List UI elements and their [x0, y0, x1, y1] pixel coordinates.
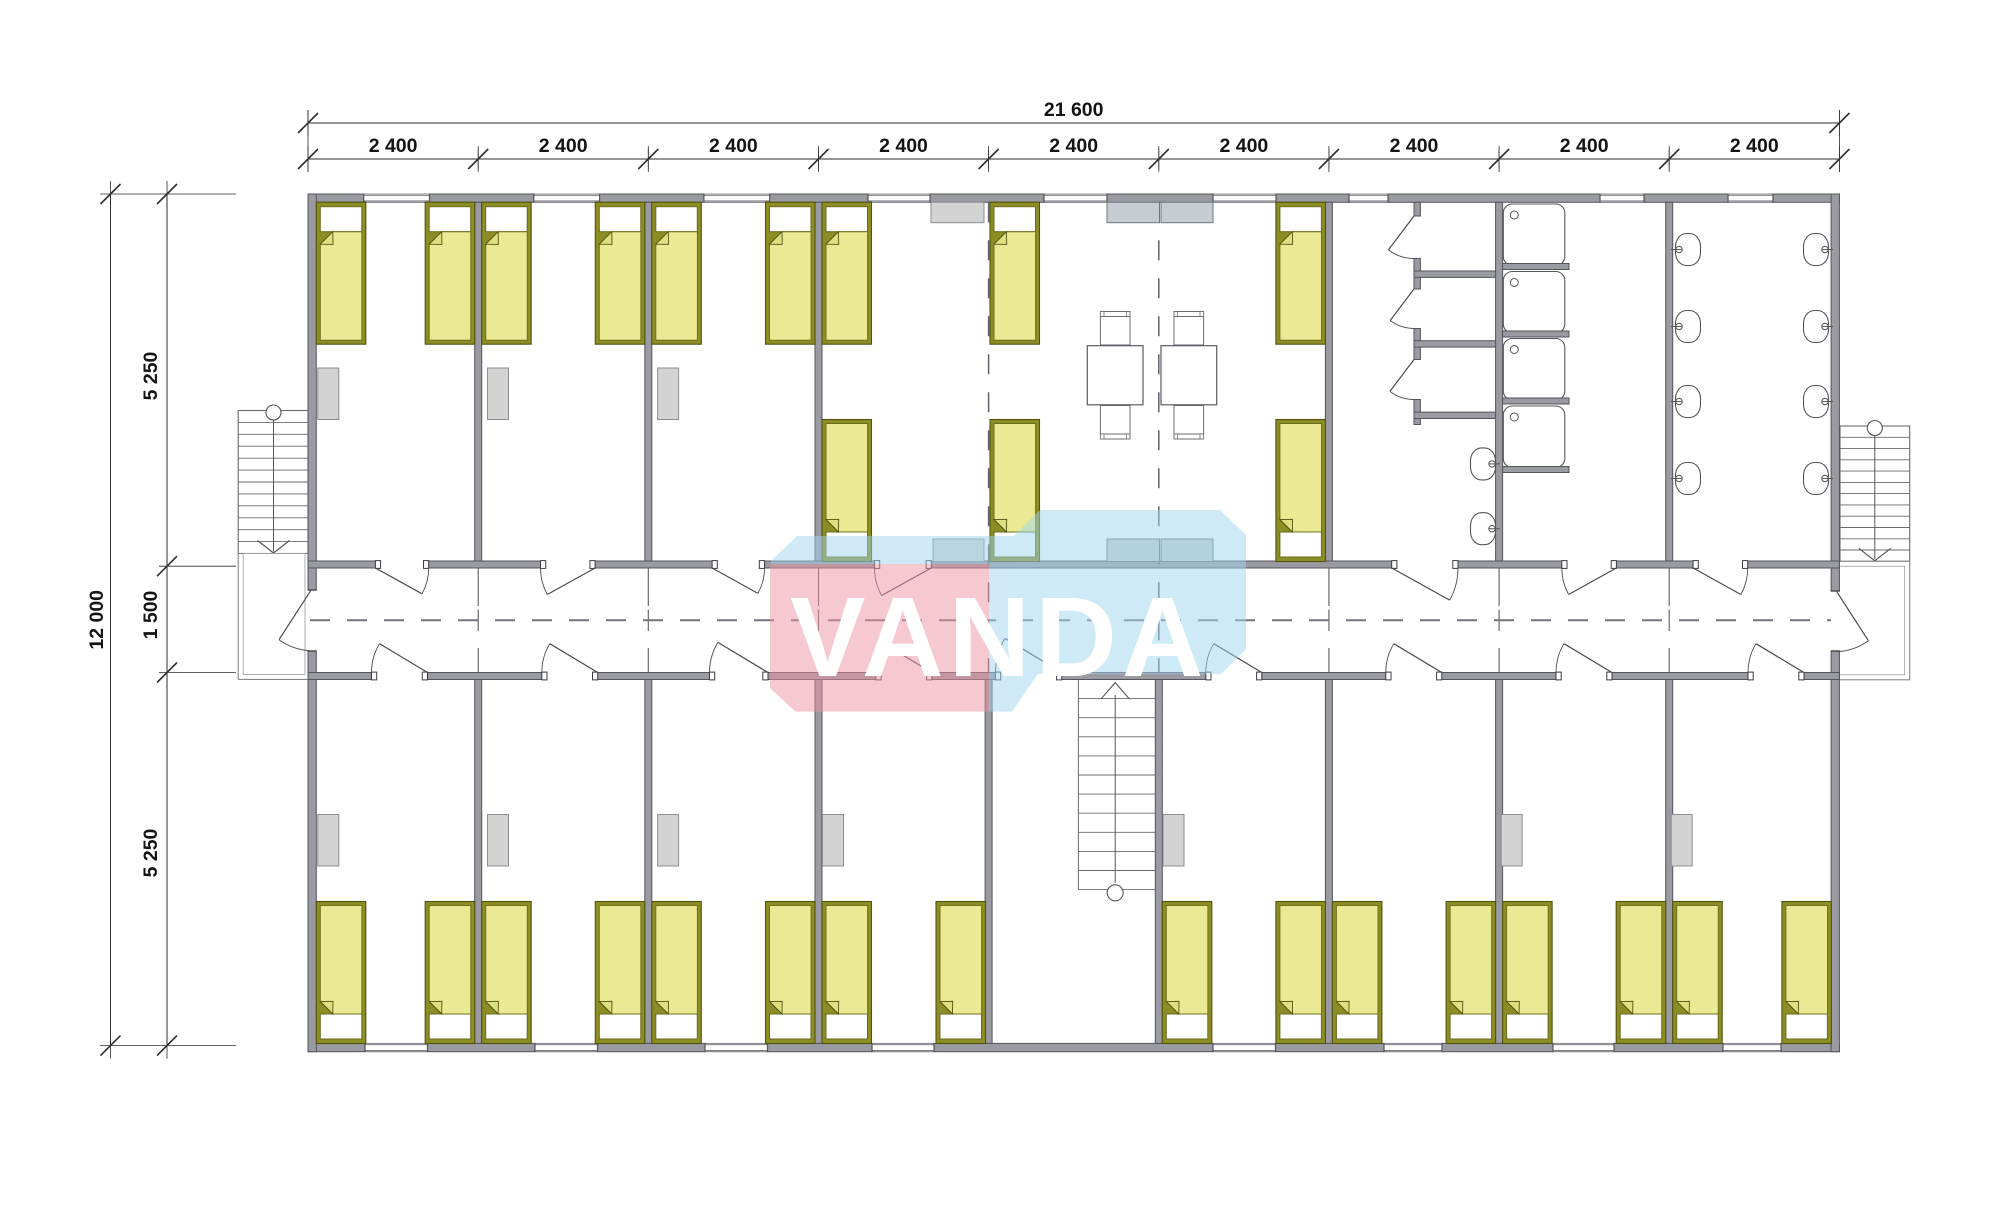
svg-text:5 250: 5 250	[140, 351, 162, 400]
svg-text:2 400: 2 400	[1049, 135, 1098, 157]
svg-text:2 400: 2 400	[709, 135, 758, 157]
svg-text:2 400: 2 400	[539, 135, 588, 157]
svg-text:2 400: 2 400	[879, 135, 928, 157]
svg-text:2 400: 2 400	[1730, 135, 1779, 157]
svg-text:2 400: 2 400	[1560, 135, 1609, 157]
svg-text:5 250: 5 250	[140, 828, 162, 877]
svg-text:2 400: 2 400	[1390, 135, 1439, 157]
svg-text:2 400: 2 400	[369, 135, 418, 157]
svg-text:2 400: 2 400	[1219, 135, 1268, 157]
svg-text:VANDA: VANDA	[790, 574, 1208, 700]
svg-text:1 500: 1 500	[140, 590, 162, 639]
svg-text:12 000: 12 000	[86, 590, 108, 650]
svg-text:21 600: 21 600	[1044, 99, 1104, 121]
